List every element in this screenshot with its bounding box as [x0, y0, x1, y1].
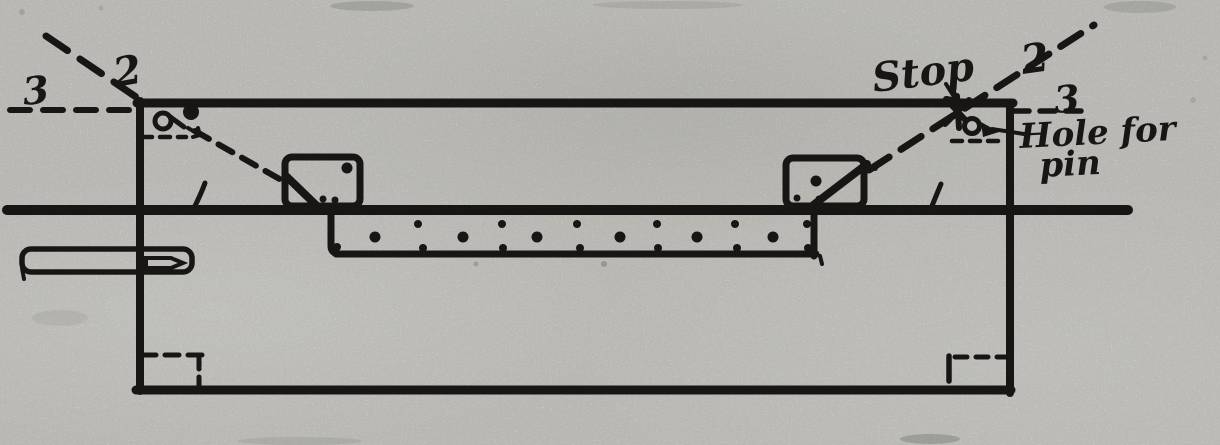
mechanism-drawing: 3 2 Stop 2 3 Hole for pin: [0, 0, 1220, 445]
drawing-canvas: 3 2 Stop 2 3 Hole for pin: [0, 0, 1220, 445]
scan-grain-overlay: [0, 0, 1220, 445]
